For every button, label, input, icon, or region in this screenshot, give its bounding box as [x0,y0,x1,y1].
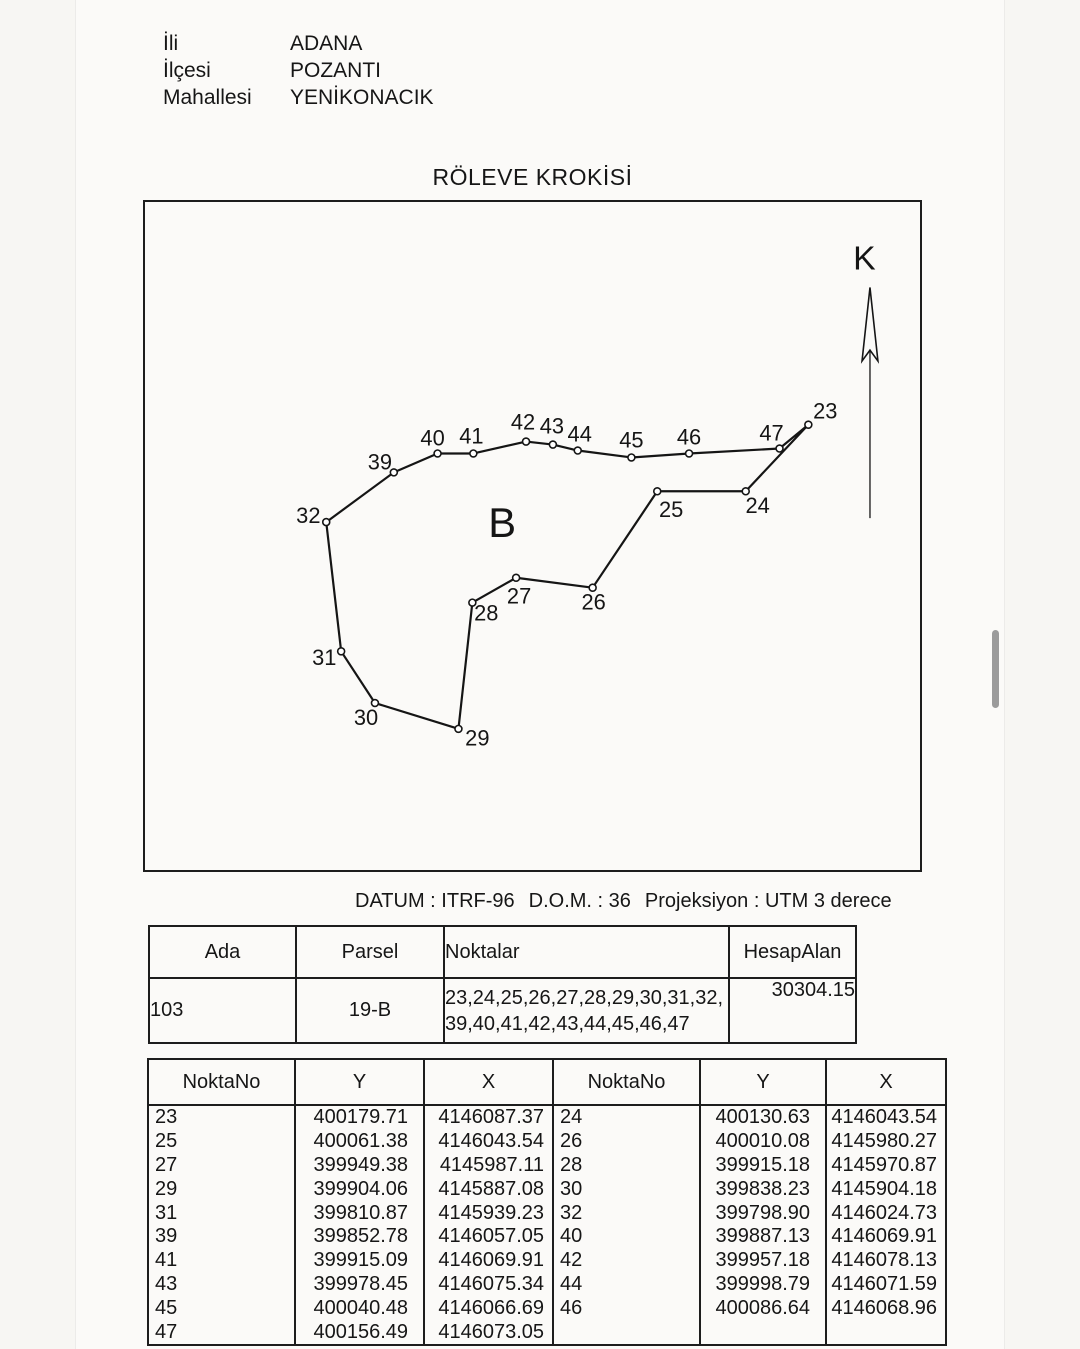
coord-row: 23400179.714146087.3724400130.634146043.… [148,1105,946,1130]
survey-point-label: 46 [677,425,701,450]
coord-cell: 400179.71 [295,1105,424,1130]
parsel-header: Parsel [296,926,444,978]
coord-cell: 45 [148,1296,295,1320]
survey-point-label: 29 [465,726,489,751]
coord-cell: 399810.87 [295,1201,424,1225]
coord-row: 43399978.454146075.3444399998.794146071.… [148,1273,946,1297]
x-header-2: X [826,1059,946,1105]
district-value: POZANTI [290,57,381,84]
coord-cell: 31 [148,1201,295,1225]
ada-header: Ada [149,926,296,978]
coord-cell: 399978.45 [295,1273,424,1297]
coordinate-table-container: NoktaNo Y X NoktaNo Y X 23400179.7141460… [147,1058,947,1346]
coord-cell: 4146069.91 [424,1249,553,1273]
coord-cell: 399949.38 [295,1154,424,1178]
survey-point-label: 25 [659,497,683,522]
coord-cell: 399915.18 [700,1154,826,1178]
hesapalan-header: HesapAlan [729,926,856,978]
coordinate-table: NoktaNo Y X NoktaNo Y X 23400179.7141460… [147,1058,947,1346]
hesapalan-value: 30304.15 [729,978,856,1043]
survey-point-label: 42 [511,410,535,435]
coord-cell: 28 [553,1154,700,1178]
coord-cell: 400130.63 [700,1105,826,1130]
coord-cell: 44 [553,1273,700,1297]
province-label: İli [163,30,290,57]
survey-point-marker [654,488,661,495]
viewer-margin-right [1005,0,1080,1349]
survey-point-marker [574,447,581,454]
coord-cell [553,1320,700,1345]
coord-cell: 41 [148,1249,295,1273]
coord-cell: 399887.13 [700,1225,826,1249]
survey-point-label: 28 [474,600,498,625]
header-field-district: İlçesi POZANTI [163,57,434,84]
survey-point-marker [323,519,330,526]
coord-cell: 4145887.08 [424,1177,553,1201]
coord-row: 29399904.064145887.0830399838.234145904.… [148,1177,946,1201]
noktalar-line2: 39,40,41,42,43,44,45,46,47 [445,1011,728,1037]
coord-cell: 399957.18 [700,1249,826,1273]
coord-cell: 399904.06 [295,1177,424,1201]
coord-row: 47400156.494146073.05 [148,1320,946,1345]
survey-sketch: K B 232425262728293031323940414243444546… [145,202,920,870]
survey-point-marker [513,574,520,581]
coord-cell: 4146043.54 [424,1130,553,1154]
neighborhood-value: YENİKONACIK [290,84,434,111]
survey-sketch-frame: K B 232425262728293031323940414243444546… [143,200,922,872]
coord-cell: 25 [148,1130,295,1154]
coord-cell: 400010.08 [700,1130,826,1154]
coord-cell: 4146057.05 [424,1225,553,1249]
header-field-province: İli ADANA [163,30,434,57]
coord-row: 39399852.784146057.0540399887.134146069.… [148,1225,946,1249]
coord-cell: 4145939.23 [424,1201,553,1225]
coord-cell [826,1320,946,1345]
survey-point-marker [549,441,556,448]
coord-cell: 4146073.05 [424,1320,553,1345]
coord-cell: 46 [553,1296,700,1320]
coord-cell: 4146024.73 [826,1201,946,1225]
survey-point-label: 31 [312,645,336,670]
survey-point-marker [455,725,462,732]
survey-point-label: 43 [540,414,564,439]
parcel-boundary-polygon [326,425,808,729]
coord-cell: 26 [553,1130,700,1154]
survey-point-marker [686,450,693,457]
coord-cell: 4146066.69 [424,1296,553,1320]
scrollbar-thumb[interactable] [992,630,999,708]
coord-cell: 400061.38 [295,1130,424,1154]
coord-cell: 42 [553,1249,700,1273]
noktalar-value: 23,24,25,26,27,28,29,30,31,32, 39,40,41,… [444,978,729,1043]
coord-row: 41399915.094146069.9142399957.184146078.… [148,1249,946,1273]
coord-row: 31399810.874145939.2332399798.904146024.… [148,1201,946,1225]
datum-line: DATUM : ITRF-96D.O.M. : 36Projeksiyon : … [355,890,906,913]
survey-point-label: 45 [619,428,643,453]
province-value: ADANA [290,30,362,57]
y-header-1: Y [295,1059,424,1105]
page-edge-right [1004,0,1005,1349]
parcel-table: Ada Parsel Noktalar HesapAlan 103 19-B 2… [148,925,857,1044]
coord-cell: 43 [148,1273,295,1297]
survey-point-label: 30 [354,705,378,730]
survey-point-marker [523,438,530,445]
coord-cell: 40 [553,1225,700,1249]
coord-cell: 4146068.96 [826,1296,946,1320]
coord-cell: 400156.49 [295,1320,424,1345]
datum-text: DATUM : ITRF-96 [355,890,515,912]
noktano-header-1: NoktaNo [148,1059,295,1105]
coord-table-body: 23400179.714146087.3724400130.634146043.… [148,1105,946,1345]
coord-cell: 4145980.27 [826,1130,946,1154]
coord-cell: 30 [553,1177,700,1201]
coord-cell: 4145970.87 [826,1154,946,1178]
survey-point-marker [805,421,812,428]
coord-cell: 24 [553,1105,700,1130]
page-edge-left [75,0,76,1349]
survey-point-label: 41 [459,424,483,449]
survey-point-marker [470,450,477,457]
coord-cell: 29 [148,1177,295,1201]
survey-point-label: 27 [507,584,531,609]
survey-point-label: 32 [296,503,320,528]
coord-table-header-row: NoktaNo Y X NoktaNo Y X [148,1059,946,1105]
survey-point-label: 44 [568,422,592,447]
neighborhood-label: Mahallesi [163,84,290,111]
ada-value: 103 [149,978,296,1043]
survey-point-label: 26 [581,590,605,615]
coord-cell: 4145987.11 [424,1154,553,1178]
header-field-neighborhood: Mahallesi YENİKONACIK [163,84,434,111]
noktano-header-2: NoktaNo [553,1059,700,1105]
x-header-1: X [424,1059,553,1105]
coord-cell: 4146069.91 [826,1225,946,1249]
coord-cell: 23 [148,1105,295,1130]
coord-cell [700,1320,826,1345]
coord-cell: 399798.90 [700,1201,826,1225]
coord-cell: 4146071.59 [826,1273,946,1297]
y-header-2: Y [700,1059,826,1105]
survey-point-marker [776,445,783,452]
coord-cell: 4146078.13 [826,1249,946,1273]
document-header: İli ADANA İlçesi POZANTI Mahallesi YENİK… [163,30,434,111]
coord-cell: 4146075.34 [424,1273,553,1297]
coord-cell: 39 [148,1225,295,1249]
projection-text: Projeksiyon : UTM 3 derece [645,890,892,912]
noktalar-header: Noktalar [444,926,729,978]
coord-row: 25400061.384146043.5426400010.084145980.… [148,1130,946,1154]
survey-point-marker [338,648,345,655]
parcel-table-data-row: 103 19-B 23,24,25,26,27,28,29,30,31,32, … [149,978,856,1043]
coord-cell: 4145904.18 [826,1177,946,1201]
viewer-margin-left [0,0,75,1349]
survey-point-label: 47 [759,421,783,446]
coord-cell: 400086.64 [700,1296,826,1320]
survey-point-label: 23 [813,399,837,424]
north-label: K [853,240,876,278]
parcel-table-container: Ada Parsel Noktalar HesapAlan 103 19-B 2… [148,925,857,1044]
survey-point-label: 24 [745,493,769,518]
coord-cell: 400040.48 [295,1296,424,1320]
coord-cell: 399998.79 [700,1273,826,1297]
survey-point-label: 40 [420,426,444,451]
coord-cell: 399838.23 [700,1177,826,1201]
north-arrow-icon [862,287,878,361]
coord-cell: 32 [553,1201,700,1225]
parsel-value: 19-B [296,978,444,1043]
coord-row: 45400040.484146066.6946400086.644146068.… [148,1296,946,1320]
survey-point-label: 39 [368,449,392,474]
district-label: İlçesi [163,57,290,84]
coord-cell: 399852.78 [295,1225,424,1249]
parcel-table-header-row: Ada Parsel Noktalar HesapAlan [149,926,856,978]
page-title: RÖLEVE KROKİSİ [143,164,922,191]
coord-cell: 4146043.54 [826,1105,946,1130]
block-label: B [488,499,516,546]
coord-cell: 4146087.37 [424,1105,553,1130]
survey-point-marker [434,450,441,457]
coord-cell: 27 [148,1154,295,1178]
coord-row: 27399949.384145987.1128399915.184145970.… [148,1154,946,1178]
coord-cell: 399915.09 [295,1249,424,1273]
noktalar-line1: 23,24,25,26,27,28,29,30,31,32, [445,985,728,1011]
survey-point-marker [628,454,635,461]
coord-cell: 47 [148,1320,295,1345]
dom-text: D.O.M. : 36 [529,890,631,912]
